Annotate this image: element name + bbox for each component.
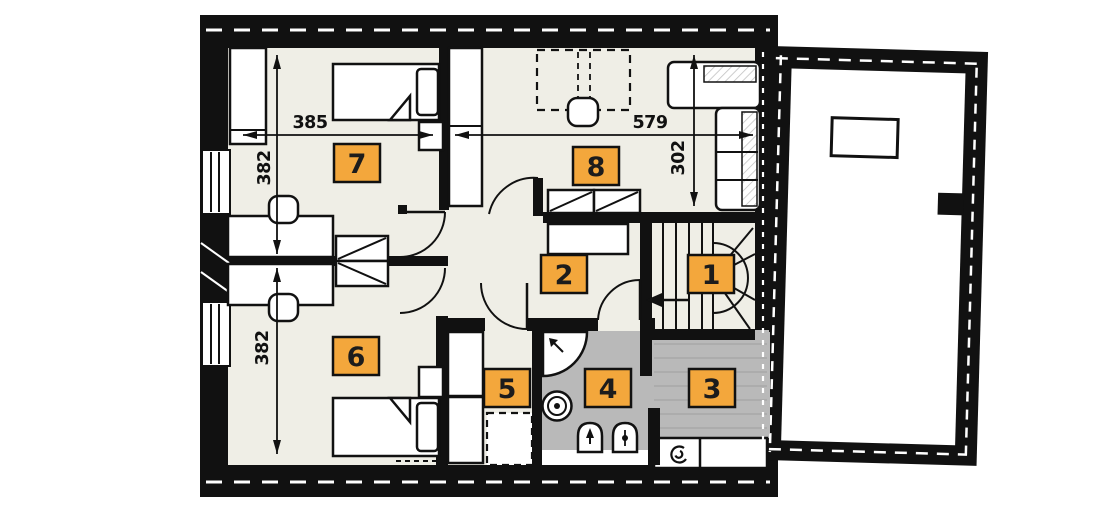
room-badge-3: 3 [689, 369, 735, 407]
dimension-label: 302 [669, 140, 689, 175]
floor-plan-svg: 385 579 382 382 302 7 8 2 1 [0, 0, 1106, 520]
dimension-label: 579 [632, 113, 667, 133]
nightstand [419, 367, 443, 397]
room-badge-5: 5 [484, 369, 530, 407]
svg-text:4: 4 [599, 374, 618, 405]
chimney-icon [831, 118, 898, 158]
chair [568, 98, 598, 126]
room-badge-1: 1 [688, 255, 734, 293]
storage-dashed [487, 413, 532, 465]
sofa-back-side [742, 112, 757, 206]
garage-wall-stub [938, 193, 965, 216]
sofa-back-top [704, 66, 756, 82]
wall-stairs-south [640, 329, 755, 340]
svg-text:2: 2 [555, 260, 574, 291]
door-post-room8 [533, 178, 543, 216]
pillow [417, 403, 438, 451]
wardrobe-upper [448, 332, 483, 396]
dimension-label: 382 [253, 330, 273, 365]
pillow [417, 69, 438, 115]
floor-plan-canvas: 385 579 382 382 302 7 8 2 1 [0, 0, 1106, 520]
dimension-label: 382 [255, 150, 275, 185]
washing-machine-center [554, 403, 560, 409]
svg-text:3: 3 [703, 374, 722, 405]
room-badge-8: 8 [573, 147, 619, 185]
room-badge-2: 2 [541, 255, 587, 293]
window-room7 [202, 150, 230, 214]
garage-wing [759, 46, 988, 466]
wall-room5-bath [532, 331, 542, 465]
svg-text:7: 7 [348, 149, 367, 180]
hall-wardrobe [548, 224, 628, 254]
svg-text:6: 6 [347, 342, 366, 373]
svg-text:1: 1 [702, 260, 721, 291]
wall-hall-south-1 [448, 318, 485, 331]
wardrobe-lower [448, 397, 483, 463]
wall-bath-room3-lower [648, 408, 660, 465]
toilet-icon [613, 423, 637, 452]
wall-hall-south-2 [527, 318, 598, 331]
bidet-icon [578, 423, 602, 452]
wall-bath-room3-upper [640, 331, 652, 376]
room-badge-6: 6 [333, 337, 379, 375]
room-badge-4: 4 [585, 369, 631, 407]
window-room6 [202, 302, 230, 366]
dimension-label: 385 [292, 113, 327, 133]
svg-text:8: 8 [587, 152, 606, 183]
chair [269, 294, 298, 321]
chair [269, 196, 298, 223]
wall-stairs-west [640, 220, 652, 331]
room-badge-7: 7 [334, 144, 380, 182]
svg-text:5: 5 [498, 374, 517, 405]
